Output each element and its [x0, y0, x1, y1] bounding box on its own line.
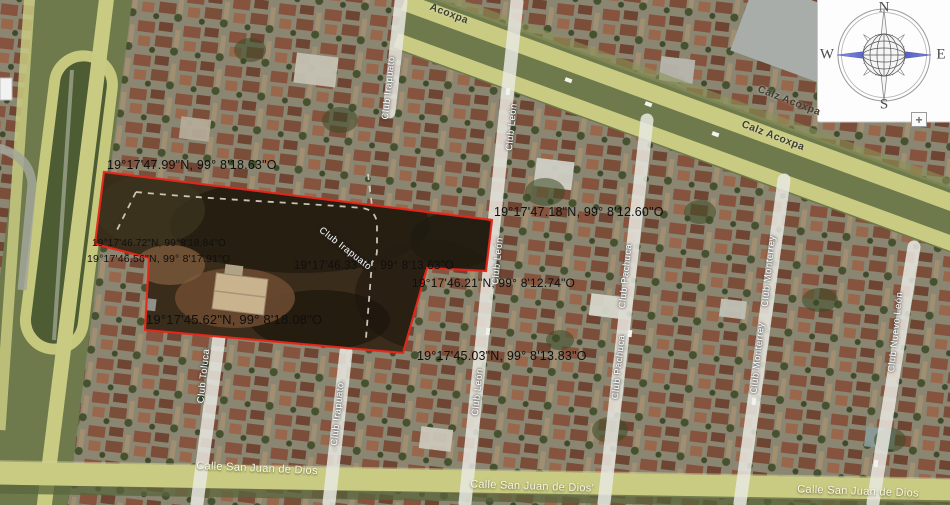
- zoom-in-button[interactable]: +: [911, 112, 927, 127]
- compass-globe: [863, 34, 905, 76]
- compass-north-label: N: [879, 1, 890, 16]
- coordinate-label-nw: 19°17'47.99"N, 99° 8'18.63"O: [107, 159, 277, 172]
- coordinate-label-ne: 19°17'47.18"N, 99° 8'12.60"O: [494, 206, 664, 219]
- compass-west-label: W: [820, 48, 834, 63]
- left-edge-marker: [0, 78, 12, 100]
- compass-east-label: E: [936, 48, 945, 63]
- coordinate-label-se: 19°17'45.03"N, 99° 8'13.83"O: [417, 350, 587, 363]
- coordinate-label-w2: 19°17'46.56"N, 99° 8'17.91"O: [87, 254, 230, 265]
- coordinate-label-center: 19°17'46.33"N , 99° 8'13.63"O: [294, 261, 454, 273]
- satellite-map: 19°17'47.99"N, 99° 8'18.63"O 19°17'47.18…: [0, 0, 950, 505]
- compass-south-label: S: [880, 98, 888, 113]
- coordinate-label-sw: 19°17'45.62"N, 99° 8'18.08"O: [146, 313, 322, 326]
- coordinate-label-w1: 19°17'46.72"N, 99°8'18.84"O: [92, 239, 226, 249]
